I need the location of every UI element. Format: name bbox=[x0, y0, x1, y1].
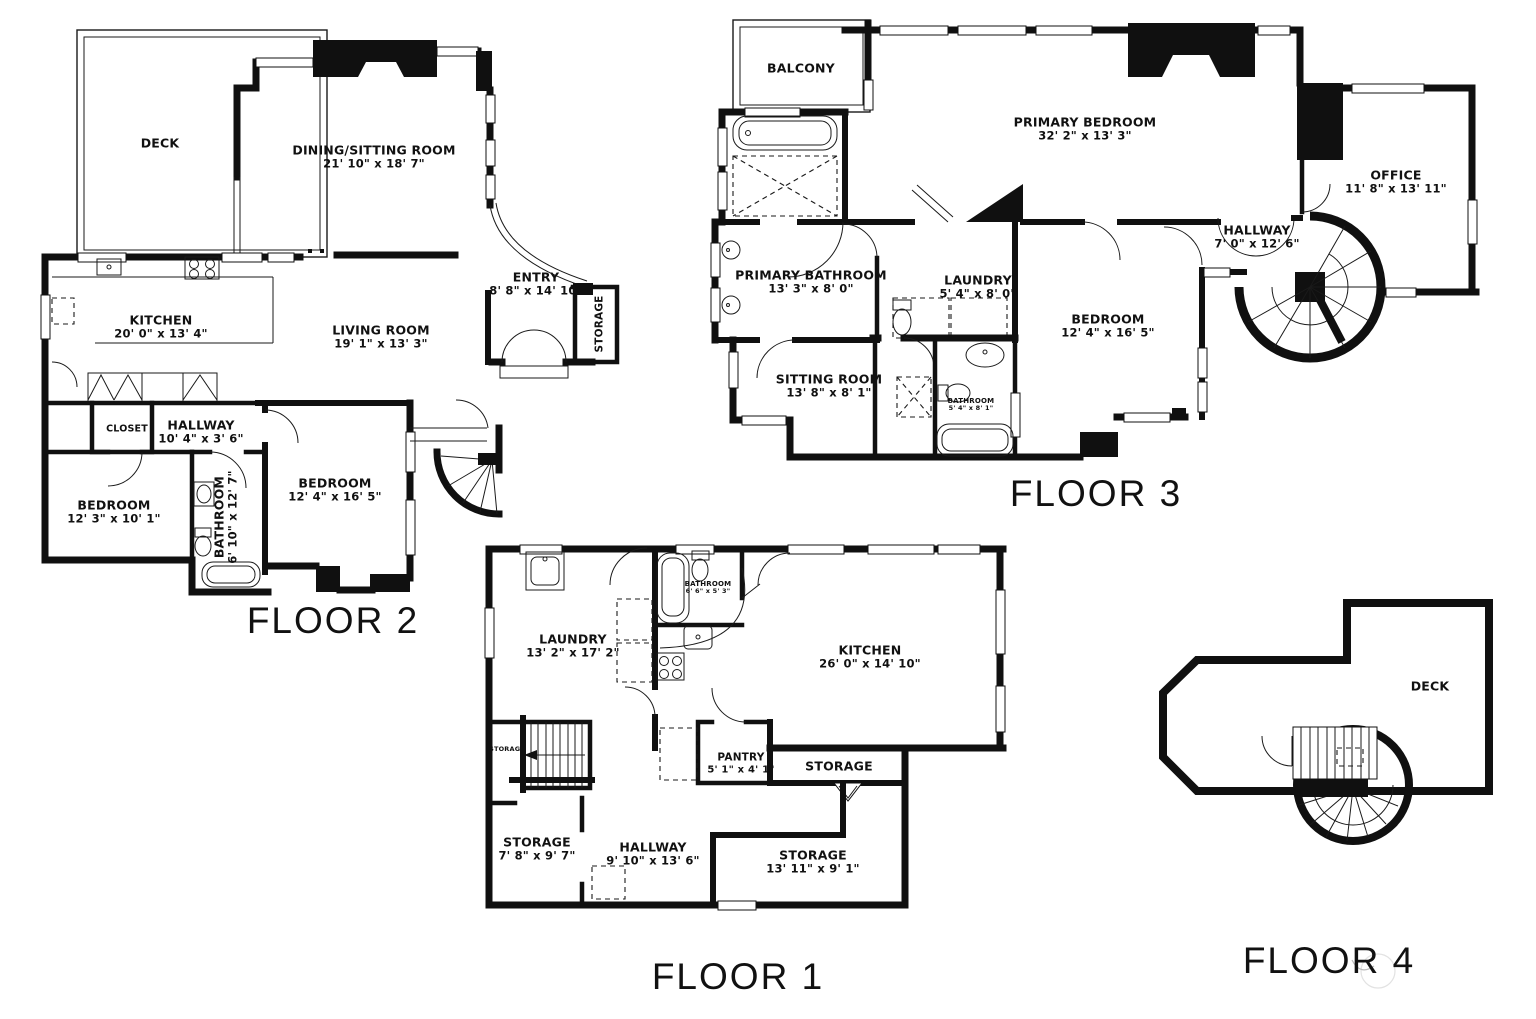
room-label-kitchen-f1: KITCHEN26' 0" x 14' 10" bbox=[819, 643, 921, 672]
room-label-bedroom-f3: BEDROOM12' 4" x 16' 5" bbox=[1061, 312, 1154, 341]
room-label-deck-f4: DECK bbox=[1411, 679, 1450, 694]
floor-4-plan bbox=[1163, 603, 1489, 841]
room-label-pantry: PANTRY5' 1" x 4' 1" bbox=[707, 752, 774, 777]
room-label-hallway-f3: HALLWAY7' 0" x 12' 6" bbox=[1214, 223, 1299, 252]
room-label-bathroom-f3: BATHROOM5' 4" x 8' 1" bbox=[948, 397, 995, 413]
room-label-storage-mid: STORAGE bbox=[805, 759, 873, 774]
room-label-entry-storage: STORAGE bbox=[594, 295, 607, 352]
room-label-hallway-f1: HALLWAY9' 10" x 13' 6" bbox=[606, 840, 699, 869]
room-label-living-room: LIVING ROOM19' 1" x 13' 3" bbox=[332, 323, 430, 352]
room-label-storage-tiny: STORAGE bbox=[489, 746, 525, 754]
room-label-laundry-f1: LAUNDRY13' 2" x 17' 2" bbox=[526, 632, 619, 661]
floor-2-title: FLOOR 2 bbox=[247, 600, 419, 642]
floor-3-title: FLOOR 3 bbox=[1010, 473, 1182, 515]
floor-1-title: FLOOR 1 bbox=[652, 956, 824, 998]
room-label-balcony: BALCONY bbox=[767, 61, 835, 76]
room-label-laundry-f3: LAUNDRY5' 4" x 8' 0" bbox=[939, 273, 1016, 302]
room-label-deck-f2: DECK bbox=[141, 136, 180, 151]
room-label-bedroom2-f2: BEDROOM12' 4" x 16' 5" bbox=[288, 476, 381, 505]
floor-4-title: FLOOR 4 bbox=[1243, 940, 1415, 982]
room-label-storage-br: STORAGE13' 11" x 9' 1" bbox=[766, 848, 859, 877]
room-label-dining-sitting: DINING/SITTING ROOM21' 10" x 18' 7" bbox=[292, 143, 455, 172]
room-label-bathroom-f2: BATHROOM6' 10" x 12' 7" bbox=[212, 470, 241, 563]
room-label-bathroom-f1: BATHROOM6' 6" x 5' 3" bbox=[685, 580, 732, 596]
room-label-storage-bl: STORAGE7' 8" x 9' 7" bbox=[498, 835, 575, 864]
floorplan-sheet: DECK DINING/SITTING ROOM21' 10" x 18' 7"… bbox=[0, 0, 1536, 1019]
room-label-kitchen-f2: KITCHEN20' 0" x 13' 4" bbox=[114, 313, 207, 342]
room-label-sitting-room: SITTING ROOM13' 8" x 8' 1" bbox=[776, 372, 882, 401]
room-label-entry: ENTRY8' 8" x 14' 10" bbox=[489, 270, 582, 299]
room-label-closet: CLOSET bbox=[106, 423, 148, 434]
room-label-bedroom1-f2: BEDROOM12' 3" x 10' 1" bbox=[67, 498, 160, 527]
room-label-primary-bathroom: PRIMARY BATHROOM13' 3" x 8' 0" bbox=[735, 268, 887, 297]
room-label-primary-bedroom: PRIMARY BEDROOM32' 2" x 13' 3" bbox=[1014, 115, 1157, 144]
room-label-hallway-f2: HALLWAY10' 4" x 3' 6" bbox=[158, 418, 243, 447]
room-label-office: OFFICE11' 8" x 13' 11" bbox=[1345, 168, 1447, 197]
